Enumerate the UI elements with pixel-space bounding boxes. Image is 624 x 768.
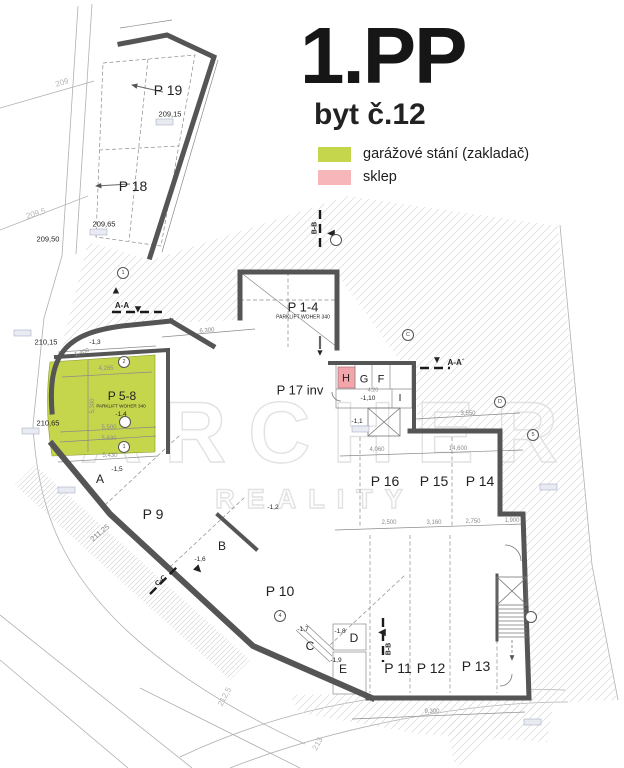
legend-item-cellar: sklep	[318, 169, 529, 185]
floor-title: 1.PP	[300, 18, 529, 94]
floor-plan-page: ARCHER REALITY	[0, 0, 624, 768]
unit-subtitle: byt č.12	[314, 98, 529, 132]
legend-label-cellar: sklep	[363, 169, 397, 185]
legend-swatch-garage	[318, 147, 351, 162]
legend-item-garage: garážové stání (zakladač)	[318, 146, 529, 162]
parking-p5-8-area	[48, 355, 155, 456]
title-block: 1.PP byt č.12 garážové stání (zakladač) …	[300, 18, 529, 185]
legend-label-garage: garážové stání (zakladač)	[363, 146, 529, 162]
cellar-h-area	[338, 367, 355, 388]
watermark-line2: REALITY	[215, 484, 415, 514]
legend-swatch-cellar	[318, 170, 351, 185]
